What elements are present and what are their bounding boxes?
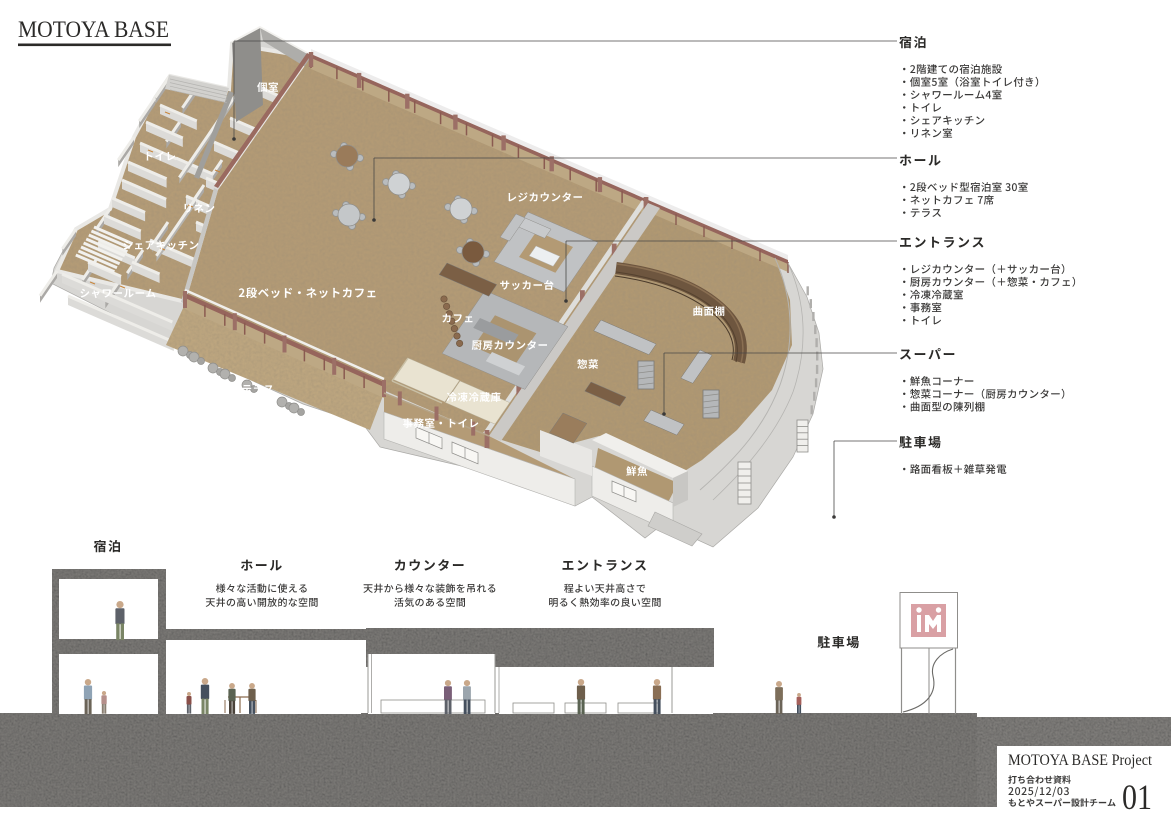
svg-text:MOTOYA BASE: MOTOYA BASE [18,17,169,42]
svg-text:01: 01 [1122,777,1152,817]
svg-text:MOTOYA BASE Project: MOTOYA BASE Project [1008,752,1153,769]
